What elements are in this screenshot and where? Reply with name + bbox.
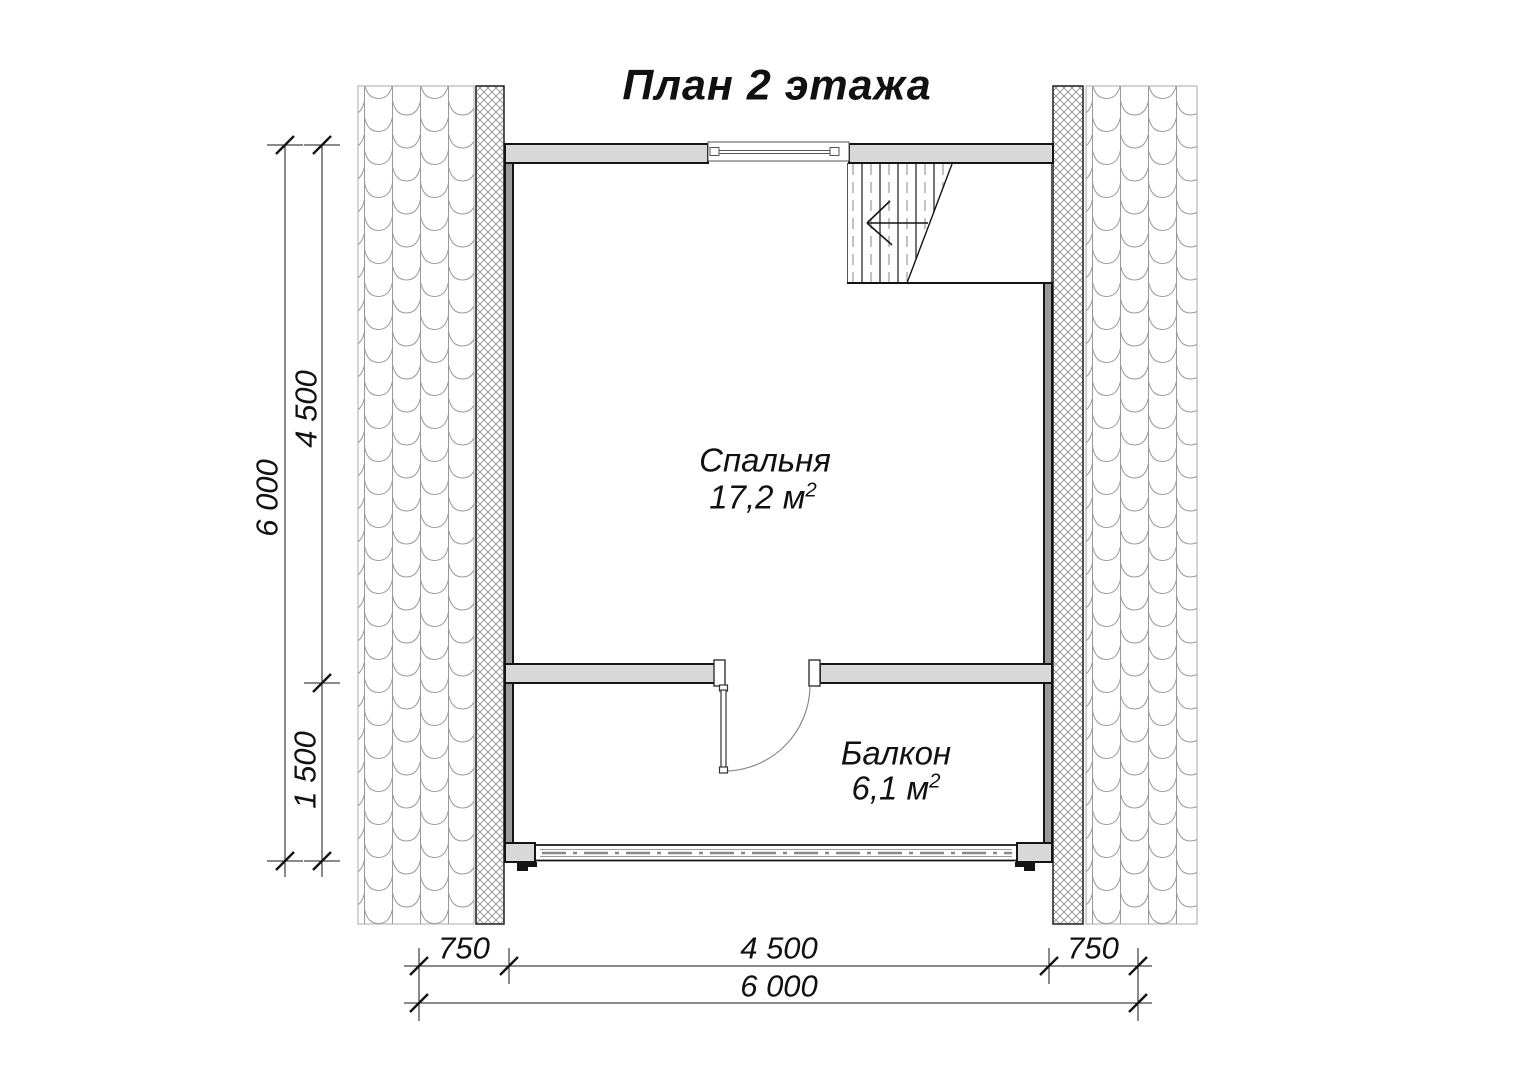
dim-left-lower: 1 500	[290, 731, 321, 809]
floor-plan-title: План 2 этажа	[622, 65, 931, 108]
partition-wall-right	[820, 664, 1052, 683]
partition-wall-left	[505, 664, 715, 683]
exterior-wall-left	[505, 163, 513, 843]
balcony-area-sup: 2	[929, 770, 940, 793]
gable-hatch-right	[1053, 86, 1083, 924]
door-swing-arc	[727, 687, 810, 771]
bedroom-area-value: 17,2 м	[709, 479, 805, 516]
window-frame-tab-left	[710, 148, 719, 156]
bedroom-area: 17,2 м2	[709, 481, 816, 514]
dim-bottom-total: 6 000	[740, 971, 818, 1002]
door-leaf	[721, 690, 726, 768]
floor-plan-page: План 2 этажа Спальня 17,2 м2 Балкон 6,1 …	[0, 0, 1528, 1080]
floor-plan-drawing	[0, 0, 1528, 1080]
door-jamb-right	[809, 660, 820, 686]
railing-anchor-right	[1015, 862, 1035, 871]
dim-bottom-width: 4 500	[740, 933, 818, 964]
railing-anchor-left	[517, 862, 537, 871]
dim-bottom-right-overhang: 750	[1067, 933, 1119, 964]
window-frame-tab-right	[830, 148, 839, 156]
dim-left-upper: 4 500	[291, 370, 322, 448]
dim-left-total: 6 000	[252, 459, 283, 537]
bedroom-area-sup: 2	[805, 479, 816, 502]
balcony-area: 6,1 м2	[851, 772, 940, 805]
dim-bottom-left-overhang: 750	[438, 933, 490, 964]
balcony-area-value: 6,1 м	[851, 770, 929, 807]
stairs	[847, 163, 1052, 283]
balcony-door	[714, 660, 820, 773]
balcony-wall-end-right	[1017, 843, 1052, 862]
window-top	[708, 142, 849, 161]
exterior-wall-right	[1044, 283, 1052, 843]
roof-tiles-right	[1086, 86, 1197, 924]
exterior-wall-top-left	[505, 144, 708, 163]
balcony-label: Балкон	[841, 737, 951, 770]
balcony-railing	[517, 845, 1035, 871]
gable-hatch-left	[476, 86, 504, 924]
bedroom-label: Спальня	[699, 444, 831, 477]
balcony-wall-end-left	[505, 843, 535, 862]
exterior-wall-top-right	[849, 144, 1053, 163]
roof-tiles-left	[358, 86, 474, 924]
door-jamb-left	[714, 660, 725, 686]
